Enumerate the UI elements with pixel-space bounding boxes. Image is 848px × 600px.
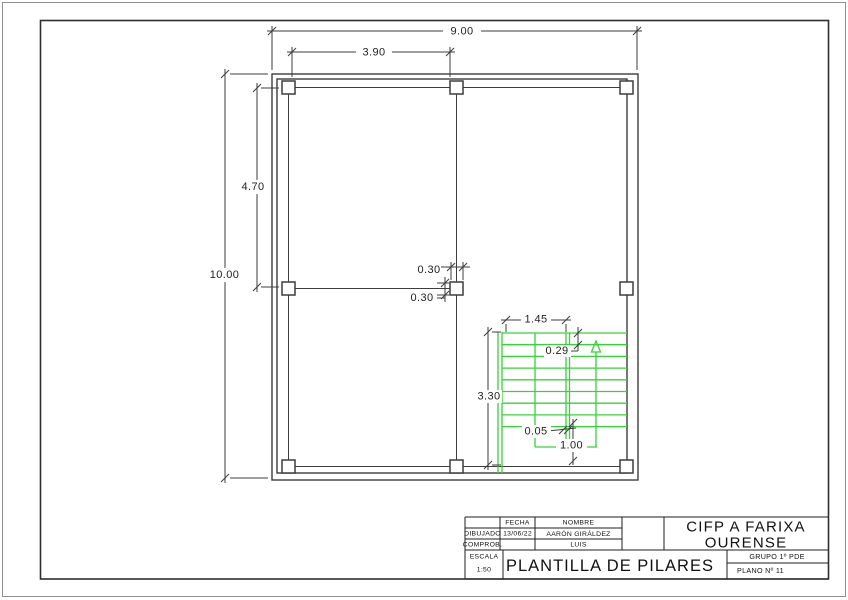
title-block-name-header: NOMBRE xyxy=(563,520,595,527)
title-block-checked-label: COMPROB. xyxy=(463,542,502,549)
dim-total-width-label: 9.00 xyxy=(450,26,473,38)
building-walls xyxy=(272,74,638,480)
dimension-tread-depth: 0.29 xyxy=(544,327,582,357)
pillar xyxy=(450,460,463,473)
dimension-stair-width: 1.45 xyxy=(501,313,571,332)
dim-bottom-run-label: 1.00 xyxy=(560,440,583,452)
pillar-grid-lines xyxy=(289,88,627,467)
pillars xyxy=(282,81,633,473)
dim-stair-width-label: 1.45 xyxy=(524,314,547,326)
dim-pillar-height-label: 0.30 xyxy=(410,292,433,304)
title-block-sheet: PLANO Nº 11 xyxy=(737,566,784,575)
dim-tread-depth-label: 0.29 xyxy=(545,345,568,357)
cad-sheet: 9.00 3.90 10.00 4.70 0.30 xyxy=(0,0,848,600)
pillar xyxy=(620,282,633,295)
pillar xyxy=(282,81,295,94)
title-block-scale-label: ESCALA xyxy=(470,554,499,561)
dimension-pillar-height: 0.30 xyxy=(410,277,449,304)
dim-bay-height-label: 4.70 xyxy=(241,181,264,193)
dimension-total-height: 10.00 xyxy=(203,69,268,483)
title-block: FECHA NOMBRE DIBUJADO 13/06/22 AARÓN GIR… xyxy=(463,517,828,579)
dim-stair-length-label: 3.30 xyxy=(477,391,500,403)
title-block-date-value: 13/06/22 xyxy=(503,531,532,538)
dimension-total-width: 9.00 xyxy=(267,24,642,70)
title-block-group: GRUPO 1º PDE xyxy=(749,552,804,561)
pillar xyxy=(620,81,633,94)
title-block-drawing-title: PLANTILLA DE PILARES xyxy=(506,557,714,575)
title-block-scale-value: 1:50 xyxy=(477,567,491,574)
pillar xyxy=(620,460,633,473)
title-block-org-line2: OURENSE xyxy=(705,535,788,552)
pillar xyxy=(282,282,295,295)
stair-direction-arrow-icon xyxy=(592,341,601,352)
title-block-checked-by: LUIS xyxy=(570,542,586,549)
dimension-bay-width: 3.90 xyxy=(287,45,455,77)
drawing-frame xyxy=(41,21,829,580)
pillar xyxy=(450,81,463,94)
title-block-drawn-by: AARÓN GIRÁLDEZ xyxy=(546,529,610,538)
pillar xyxy=(282,460,295,473)
dim-total-height-label: 10.00 xyxy=(210,269,240,281)
dim-bay-width-label: 3.90 xyxy=(362,47,385,59)
pillar xyxy=(450,282,463,295)
title-block-drawn-label: DIBUJADO xyxy=(464,531,501,538)
dimension-pillar-width: 0.30 xyxy=(417,262,470,280)
cad-canvas: 9.00 3.90 10.00 4.70 0.30 xyxy=(0,0,848,600)
title-block-date-header: FECHA xyxy=(505,520,530,527)
dim-stringer-gap-label: 0.05 xyxy=(524,426,547,438)
title-block-org-line1: CIFP A FARIXA xyxy=(686,519,806,536)
dim-pillar-width-label: 0.30 xyxy=(417,264,440,276)
